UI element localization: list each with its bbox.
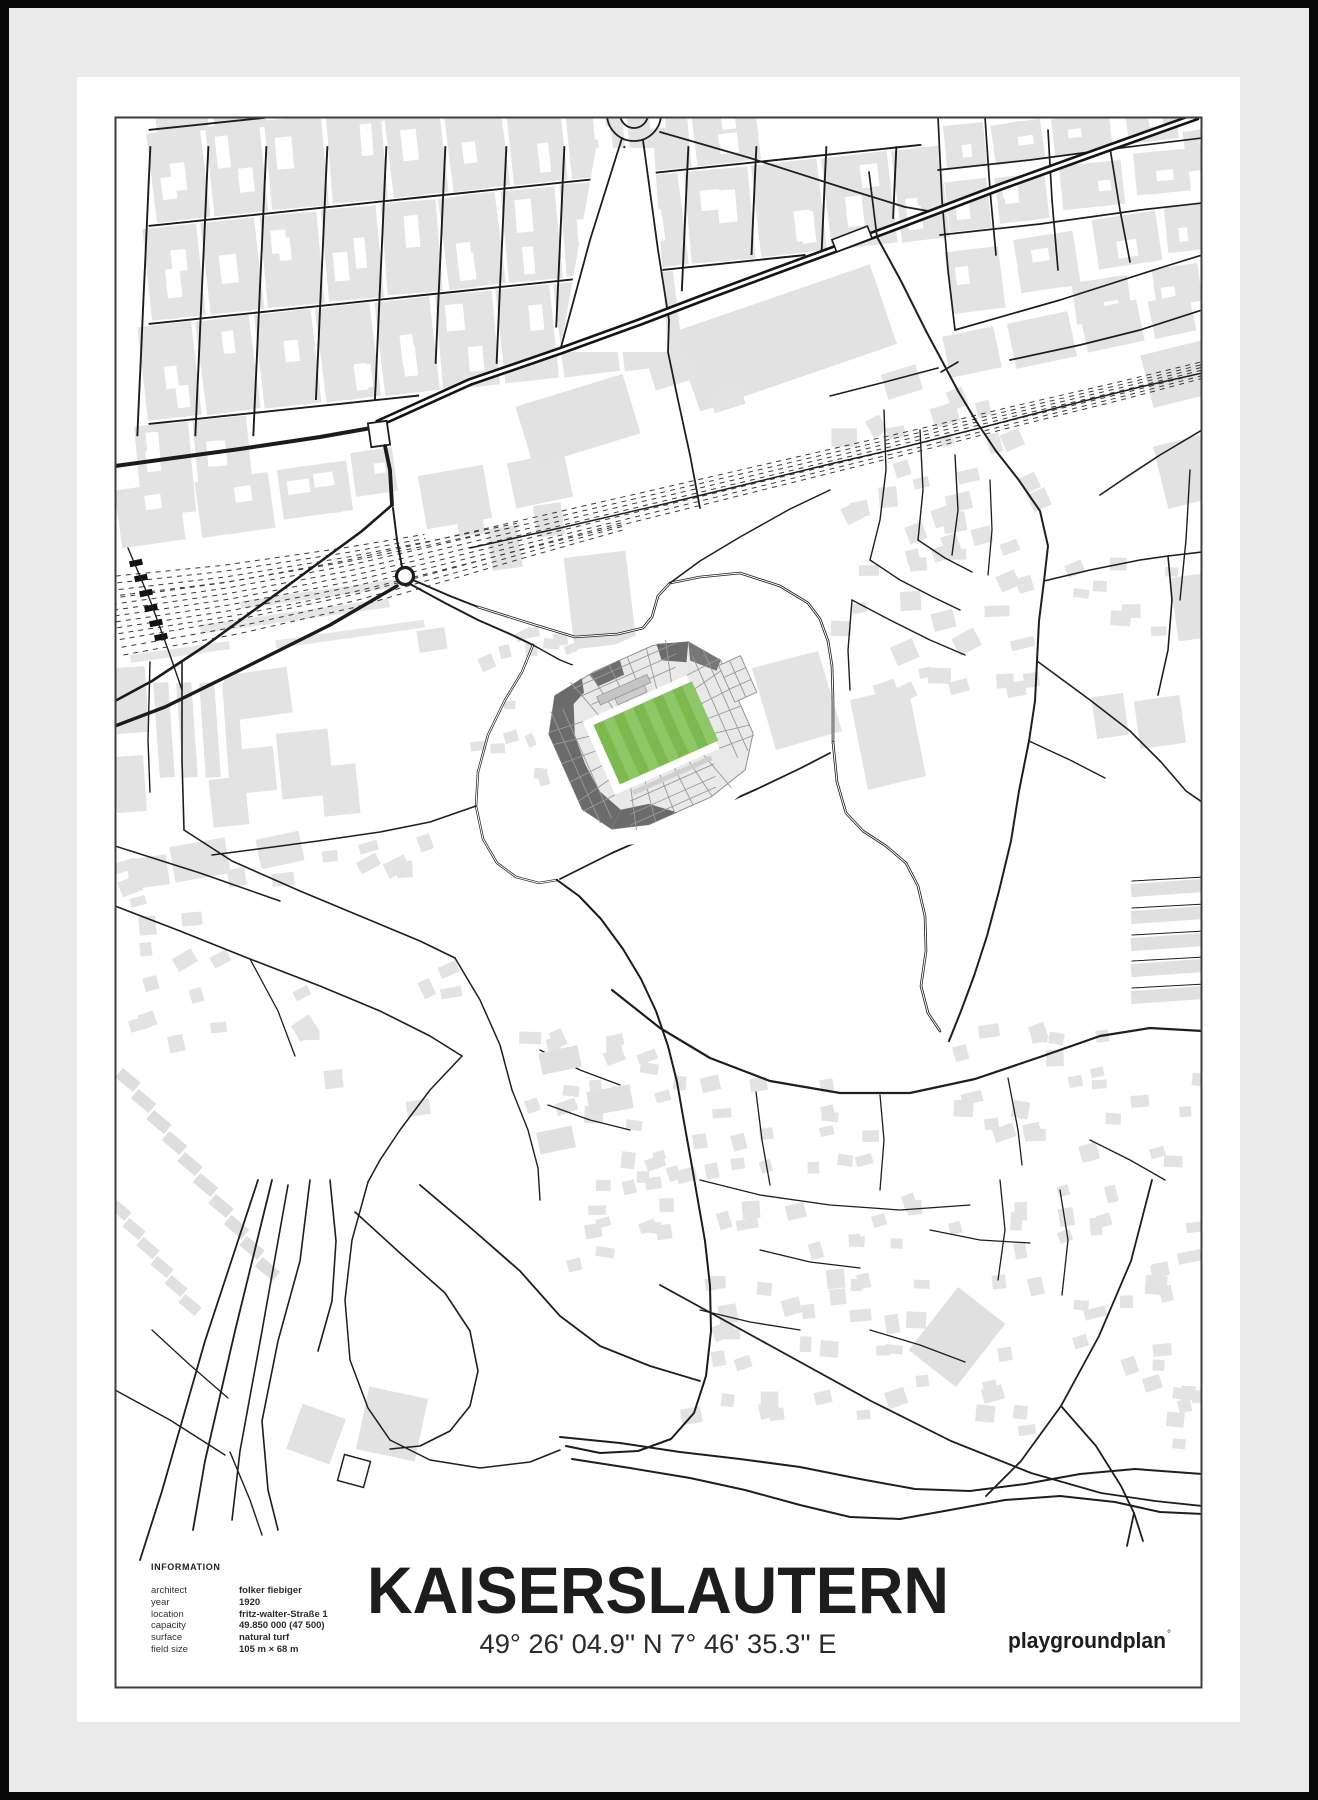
svg-text:playgroundplan: playgroundplan: [1008, 1628, 1166, 1653]
svg-text:architect: architect: [151, 1585, 187, 1596]
svg-text:fritz-walter-Straße 1: fritz-walter-Straße 1: [239, 1609, 328, 1620]
svg-text:49.850 000 (47 500): 49.850 000 (47 500): [239, 1620, 325, 1631]
svg-text:1920: 1920: [239, 1597, 260, 1608]
svg-text:INFORMATION: INFORMATION: [151, 1562, 220, 1572]
svg-text:folker fiebiger: folker fiebiger: [239, 1585, 302, 1596]
svg-text:49° 26' 04.9'' N 7° 46' 35.3': 49° 26' 04.9'' N 7° 46' 35.3'' E: [480, 1629, 837, 1659]
svg-text:field size: field size: [151, 1644, 188, 1655]
svg-text:surface: surface: [151, 1632, 182, 1643]
svg-text:natural turf: natural turf: [239, 1632, 290, 1643]
svg-text:105 m × 68 m: 105 m × 68 m: [239, 1644, 298, 1655]
svg-text:capacity: capacity: [151, 1620, 186, 1631]
svg-text:KAISERSLAUTERN: KAISERSLAUTERN: [367, 1553, 949, 1627]
svg-text:year: year: [151, 1597, 169, 1608]
svg-text:°: °: [1167, 1629, 1171, 1640]
svg-text:location: location: [151, 1609, 184, 1620]
